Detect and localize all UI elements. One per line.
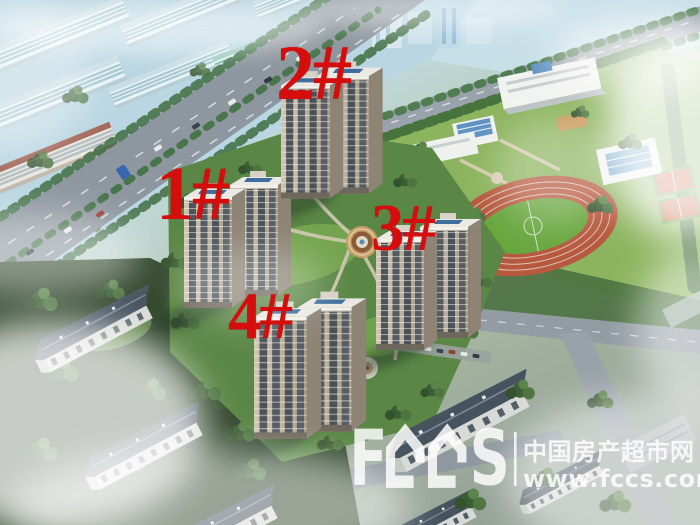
watermark-url: www.fccs.com (523, 465, 700, 493)
building-label-3: 3# (371, 198, 434, 260)
logo-letter-s: S (470, 422, 510, 502)
logo-letter-c-house-icon (433, 432, 462, 482)
fccs-logo: F S (352, 422, 510, 502)
logo-letter-c-house-icon (391, 432, 420, 482)
building-label-4: 4# (228, 286, 291, 348)
watermark-site-name: 中国房产超市网 (523, 438, 695, 466)
aerial-rendering: 1# 2# 3# 4# F S 中国房产超市网 www.fccs.com (0, 0, 700, 525)
logo-letter-f: F (352, 422, 387, 502)
building-label-2: 2# (276, 37, 350, 109)
building-label-1: 1# (156, 160, 228, 230)
watermark-divider (514, 432, 517, 486)
fccs-watermark: F S 中国房产超市网 www.fccs.com (352, 422, 700, 502)
